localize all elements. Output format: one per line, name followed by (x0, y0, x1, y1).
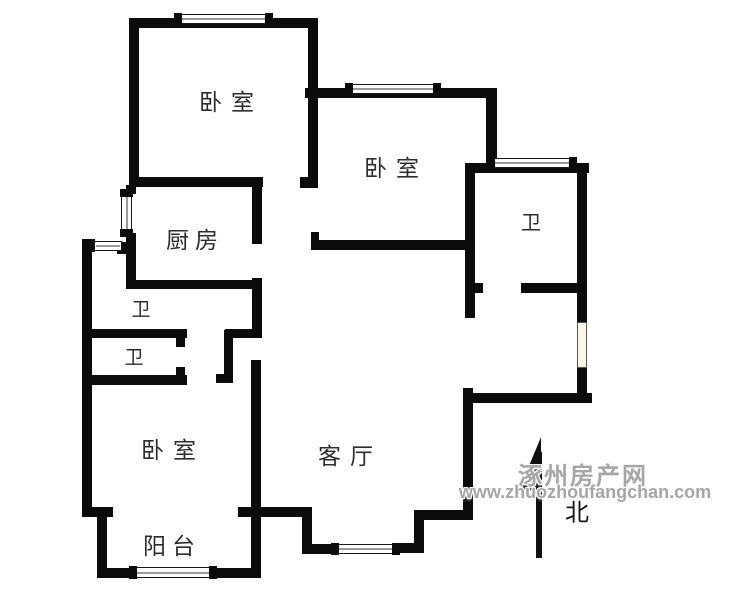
room-label-kitchen: 厨房 (166, 221, 224, 255)
room-label-bedroom-middle: 卧室 (364, 149, 428, 183)
watermark-url: www.zhuozhoufangchan.com (459, 482, 711, 503)
room-label-bath-top-right: 卫 (521, 207, 541, 236)
north-arrow-icon (0, 0, 736, 600)
room-label-bath-lower-left: 卫 (124, 343, 143, 370)
room-label-living-room: 客厅 (318, 437, 382, 471)
room-label-bedroom-bottom-left: 卧室 (141, 431, 205, 465)
room-label-bath-upper-left: 卫 (131, 295, 150, 322)
room-label-bedroom-top-left: 卧室 (199, 83, 263, 117)
room-label-balcony: 阳台 (143, 527, 201, 561)
floorplan: 北 涿州房产网 www.zhuozhoufangchan.com 卧室卧室卫厨房… (0, 0, 736, 600)
